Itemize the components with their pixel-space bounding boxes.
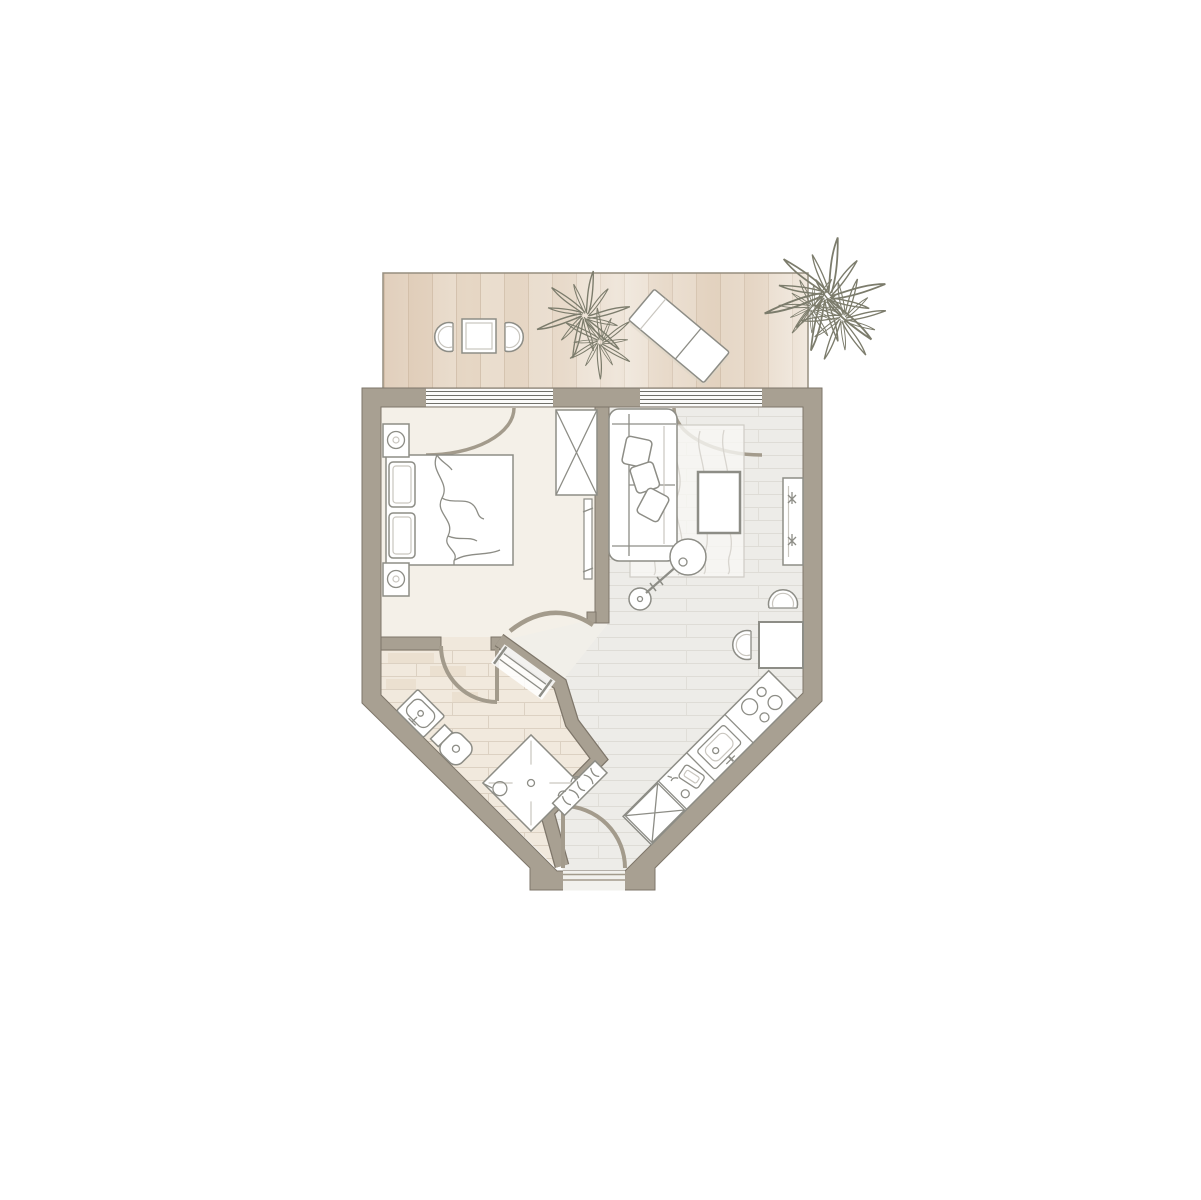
nightstand-bottom <box>383 563 409 596</box>
sideboard <box>783 478 803 565</box>
wardrobe <box>556 410 597 495</box>
wall-mirror <box>583 499 593 579</box>
balcony-window-right <box>640 389 762 407</box>
bistro-table <box>462 319 496 353</box>
nightstand-top <box>383 424 409 457</box>
dining-table <box>759 622 803 668</box>
coffee-table <box>698 472 740 533</box>
floor-plan-page <box>0 0 1201 1200</box>
balcony <box>383 237 898 389</box>
sofa <box>609 409 677 561</box>
bathroom-top-wall <box>381 637 441 650</box>
bathroom-doorway-floor <box>441 637 497 650</box>
floor-plan-canvas <box>0 0 1201 1200</box>
double-bed <box>386 455 513 565</box>
balcony-window-left <box>426 389 553 407</box>
